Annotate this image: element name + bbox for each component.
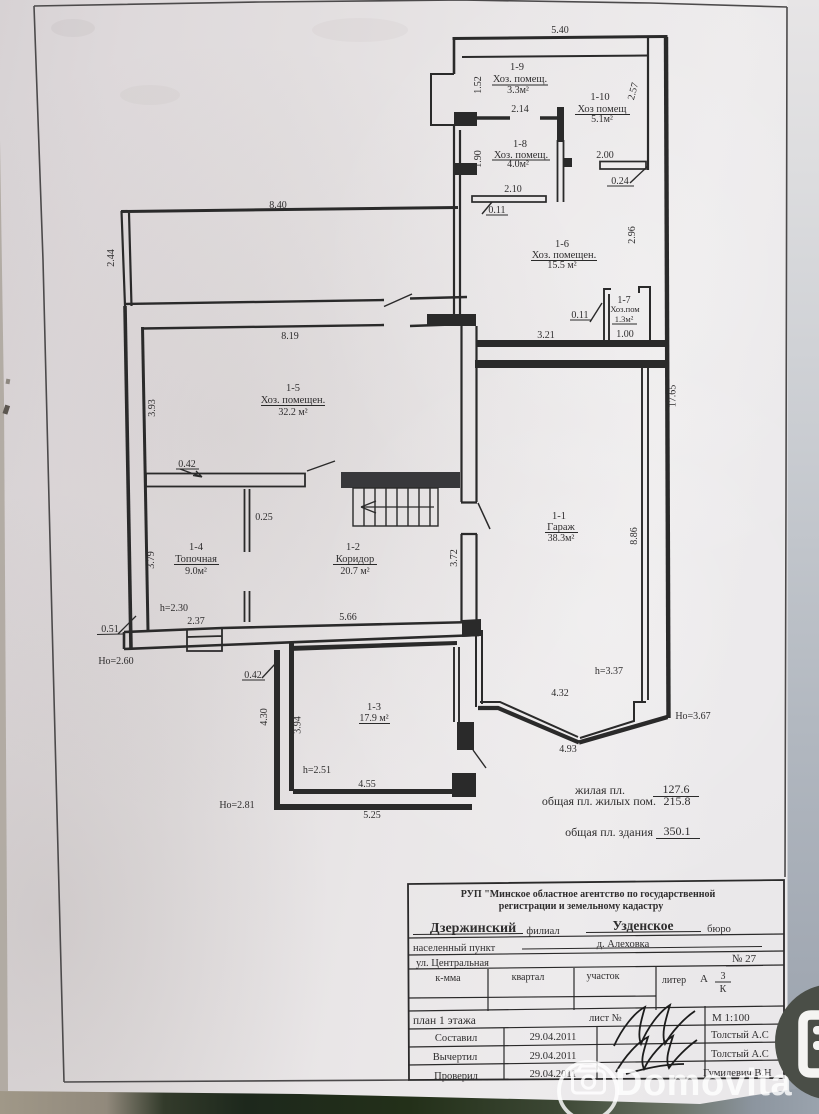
svg-text:Узденское: Узденское [613,918,674,933]
svg-text:регистрации и земельному кадас: регистрации и земельному кадастру [499,901,663,912]
svg-text:литер: литер [662,975,686,986]
svg-text:0.11: 0.11 [571,310,588,321]
svg-text:Толстый А.С: Толстый А.С [711,1030,769,1041]
svg-text:план 1 этажа: план 1 этажа [413,1015,476,1027]
svg-text:0.24: 0.24 [611,176,629,187]
svg-text:32.2 м²: 32.2 м² [278,407,307,418]
svg-text:3.72: 3.72 [449,549,460,567]
svg-text:0.42: 0.42 [244,670,262,681]
svg-text:1-9: 1-9 [510,62,524,73]
svg-text:1-1: 1-1 [552,511,566,522]
svg-text:3.79: 3.79 [146,551,157,569]
svg-text:Хоз. помещ.: Хоз. помещ. [493,74,547,85]
svg-text:38.3м²: 38.3м² [548,533,575,544]
svg-text:Проверил: Проверил [434,1071,478,1082]
svg-text:Но=3.67: Но=3.67 [675,711,710,722]
svg-text:РУП "Минское областное агентст: РУП "Минское областное агентство по госу… [461,889,716,900]
svg-text:1.90: 1.90 [473,150,484,168]
svg-text:А: А [700,973,708,985]
svg-text:населенный пункт: населенный пункт [413,943,496,954]
svg-text:15.5 м²: 15.5 м² [547,260,576,271]
svg-text:общая пл. жилых пом.: общая пл. жилых пом. [542,794,656,808]
svg-text:квартал: квартал [512,972,545,983]
svg-text:1-3: 1-3 [367,702,381,713]
svg-text:д. Алеховка: д. Алеховка [597,939,650,950]
svg-text:1-10: 1-10 [590,92,609,103]
svg-text:1-6: 1-6 [555,239,569,250]
svg-text:4.0м²: 4.0м² [507,159,529,170]
svg-text:0.25: 0.25 [255,512,273,523]
svg-text:h=2.30: h=2.30 [160,603,188,614]
svg-text:5.1м²: 5.1м² [591,114,613,125]
svg-text:лист №: лист № [589,1013,622,1024]
svg-text:17.9 м²: 17.9 м² [359,713,388,724]
svg-text:5.40: 5.40 [551,25,569,36]
svg-text:2.00: 2.00 [596,150,614,161]
svg-text:1-8: 1-8 [513,139,527,150]
svg-text:Топочная: Топочная [175,554,217,565]
svg-text:2.96: 2.96 [627,226,638,244]
svg-text:2.14: 2.14 [511,104,529,115]
svg-text:4.93: 4.93 [559,744,577,755]
svg-text:4.32: 4.32 [551,688,569,699]
svg-text:20.7 м²: 20.7 м² [340,566,369,577]
svg-text:2.44: 2.44 [106,249,117,267]
svg-text:8.19: 8.19 [281,331,299,342]
svg-text:Коридор: Коридор [336,554,374,565]
svg-text:8.86: 8.86 [629,527,640,545]
svg-text:h=3.37: h=3.37 [595,666,623,677]
svg-text:8.40: 8.40 [269,200,287,211]
svg-text:Вычертил: Вычертил [433,1052,478,1063]
svg-text:Составил: Составил [435,1033,477,1044]
svg-text:филиал: филиал [526,926,559,937]
svg-text:h=2.51: h=2.51 [303,765,331,776]
svg-text:3.3м²: 3.3м² [507,85,529,96]
svg-text:Толстый А.С: Толстый А.С [711,1049,769,1060]
svg-text:2.37: 2.37 [187,616,205,627]
svg-text:350.1: 350.1 [664,824,691,838]
svg-text:4.30: 4.30 [259,708,270,726]
svg-text:3.21: 3.21 [537,330,555,341]
svg-text:1-2: 1-2 [346,542,360,553]
svg-text:1-5: 1-5 [286,383,300,394]
svg-text:Хоз.пом: Хоз.пом [610,304,640,314]
svg-text:0.42: 0.42 [178,459,196,470]
svg-text:5.66: 5.66 [339,612,357,623]
svg-text:3: 3 [721,971,726,982]
svg-text:К: К [720,984,727,995]
svg-text:9.0м²: 9.0м² [185,566,207,577]
svg-text:29.04.2011: 29.04.2011 [530,1032,577,1043]
svg-text:1.00: 1.00 [616,329,634,340]
svg-text:29.04.2011: 29.04.2011 [530,1051,577,1062]
svg-text:М 1:100: М 1:100 [712,1012,750,1024]
svg-text:0.11: 0.11 [488,205,505,216]
svg-text:5.25: 5.25 [363,810,381,821]
svg-text:1.3м²: 1.3м² [615,314,634,324]
svg-text:Domovita: Domovita [615,1062,793,1104]
svg-text:4.55: 4.55 [358,779,376,790]
svg-text:участок: участок [586,971,619,982]
svg-text:1-4: 1-4 [189,542,204,553]
svg-text:0.51: 0.51 [101,624,119,635]
svg-text:к-мма: к-мма [435,973,461,984]
svg-text:Но=2.81: Но=2.81 [219,800,254,811]
svg-text:3.94: 3.94 [293,716,304,734]
svg-text:Хоз. помещен.: Хоз. помещен. [261,395,326,406]
svg-text:17.65: 17.65 [668,385,679,408]
svg-text:2.10: 2.10 [504,184,522,195]
svg-text:Гараж: Гараж [547,522,575,533]
svg-text:общая пл. здания: общая пл. здания [565,825,653,839]
svg-text:1.52: 1.52 [473,76,484,94]
svg-text:ул. Центральная: ул. Центральная [416,958,489,969]
svg-text:3.93: 3.93 [147,399,158,417]
svg-text:№ 27: № 27 [732,953,757,965]
svg-text:Но=2.60: Но=2.60 [98,656,133,667]
svg-text:бюро: бюро [707,924,731,935]
